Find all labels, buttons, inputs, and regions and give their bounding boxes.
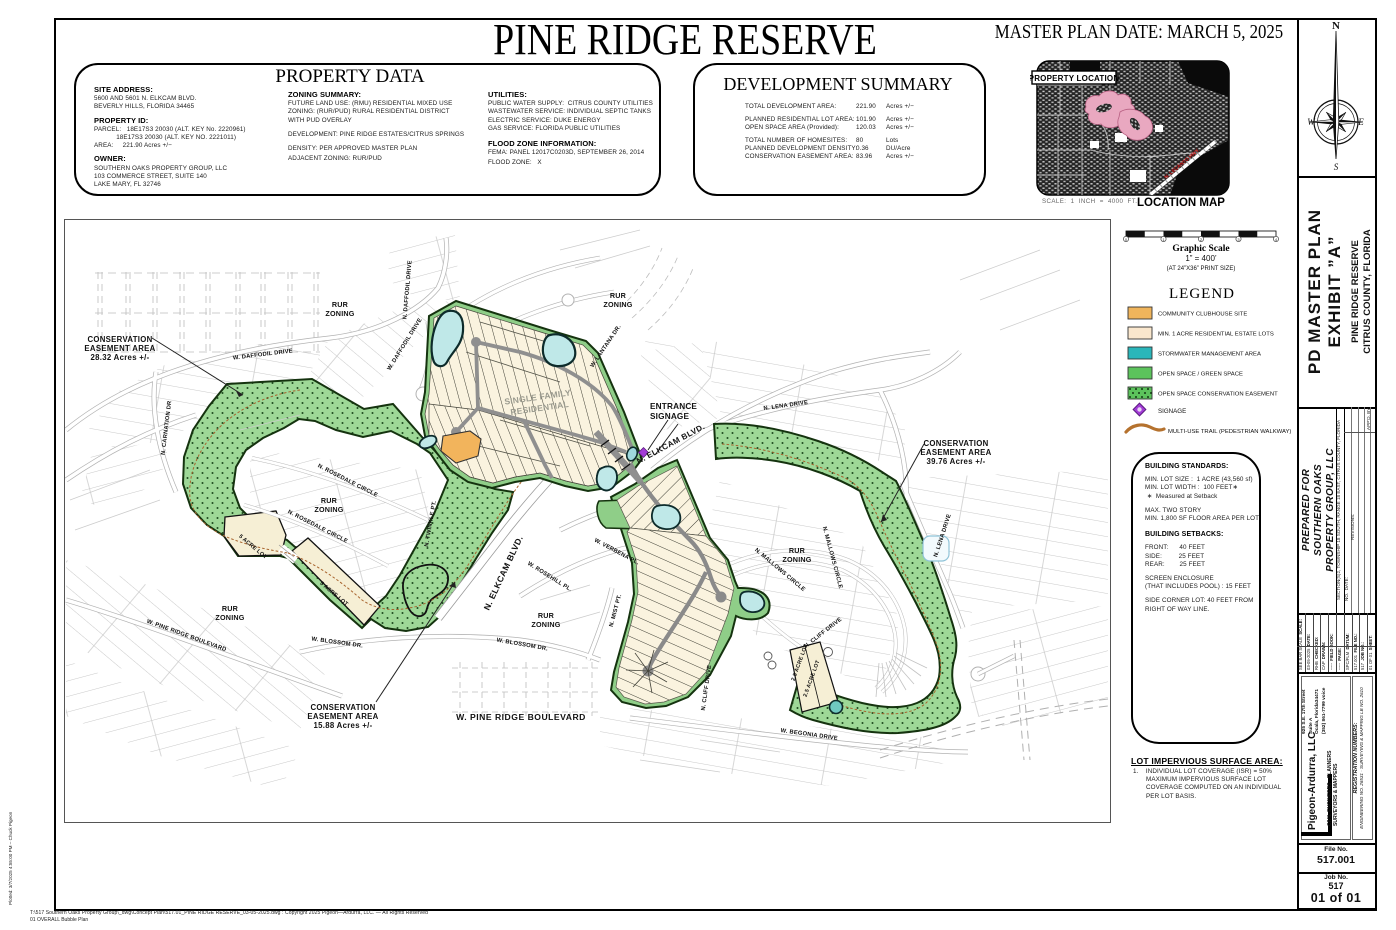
svg-text:OPEN SPACE CONSERVATION EASEME: OPEN SPACE CONSERVATION EASEMENT: [1158, 392, 1278, 398]
svg-text:E: E: [1357, 117, 1364, 127]
svg-text:Graphic Scale: Graphic Scale: [1172, 244, 1229, 254]
svg-text:N: N: [1332, 20, 1340, 32]
svg-text:(AT 24”X36” PRINT SIZE): (AT 24”X36” PRINT SIZE): [1167, 266, 1236, 272]
svg-text:MIN. 1 ACRE RESIDENTIAL ESTATE: MIN. 1 ACRE RESIDENTIAL ESTATE LOTS: [1158, 332, 1274, 338]
svg-text:MULTI-USE TRAIL (PEDESTRIAN WA: MULTI-USE TRAIL (PEDESTRIAN WALKWAY): [1168, 429, 1291, 435]
svg-text:S: S: [1334, 162, 1339, 172]
svg-text:OPEN SPACE / GREEN SPACE: OPEN SPACE / GREEN SPACE: [1158, 372, 1243, 378]
svg-text:SIGNAGE: SIGNAGE: [1158, 408, 1186, 415]
svg-text:PROPERTY LOCATION: PROPERTY LOCATION: [1030, 74, 1119, 83]
svg-text:LEGEND: LEGEND: [1169, 286, 1235, 302]
svg-text:COMMUNITY CLUBHOUSE SITE: COMMUNITY CLUBHOUSE SITE: [1158, 312, 1247, 318]
svg-text:STORMWATER MANAGEMENT AREA: STORMWATER MANAGEMENT AREA: [1158, 352, 1261, 358]
svg-text:1” = 400’: 1” = 400’: [1185, 254, 1217, 263]
